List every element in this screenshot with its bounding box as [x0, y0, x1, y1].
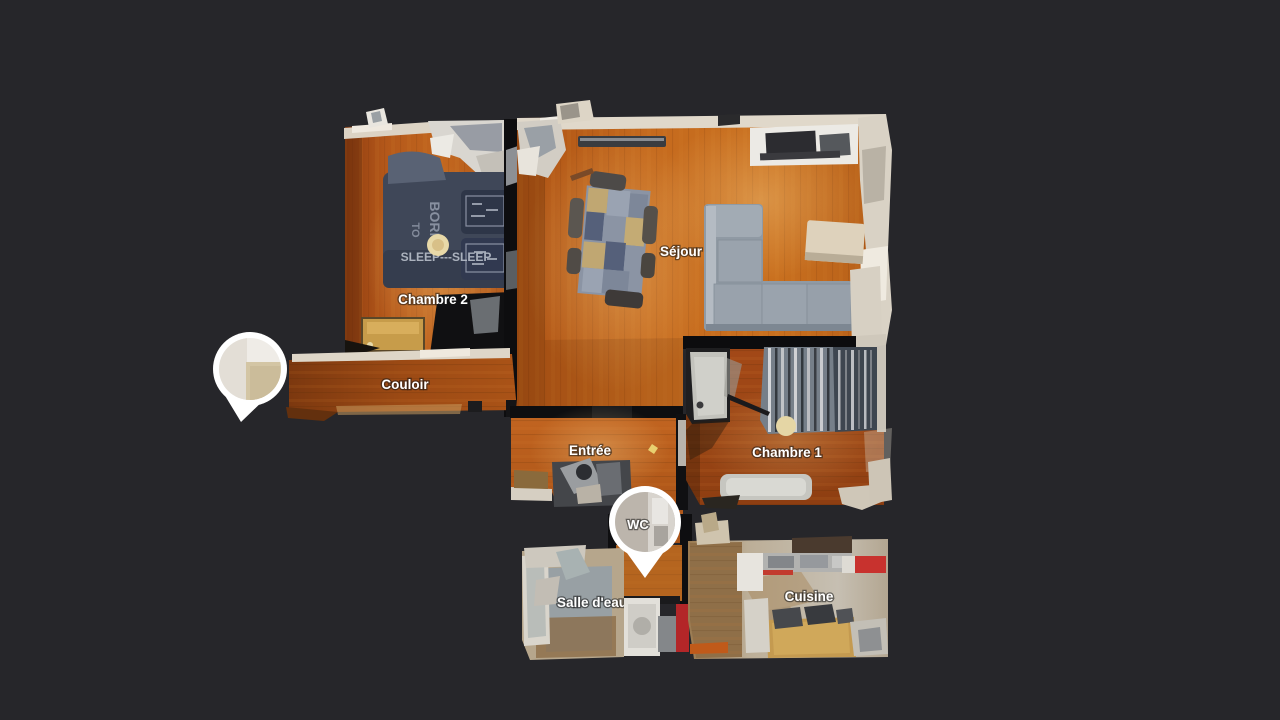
svg-text:Couloir: Couloir [381, 377, 429, 392]
svg-text:Entrée: Entrée [569, 443, 612, 458]
svg-text:TO: TO [409, 222, 421, 238]
svg-text:Séjour: Séjour [660, 244, 703, 259]
svg-text:Salle d'eau: Salle d'eau [557, 595, 627, 610]
svg-text:Chambre 1: Chambre 1 [752, 445, 822, 460]
svg-text:WC: WC [627, 517, 649, 532]
svg-text:Chambre 2: Chambre 2 [398, 292, 468, 307]
svg-text:Cuisine: Cuisine [785, 589, 834, 604]
